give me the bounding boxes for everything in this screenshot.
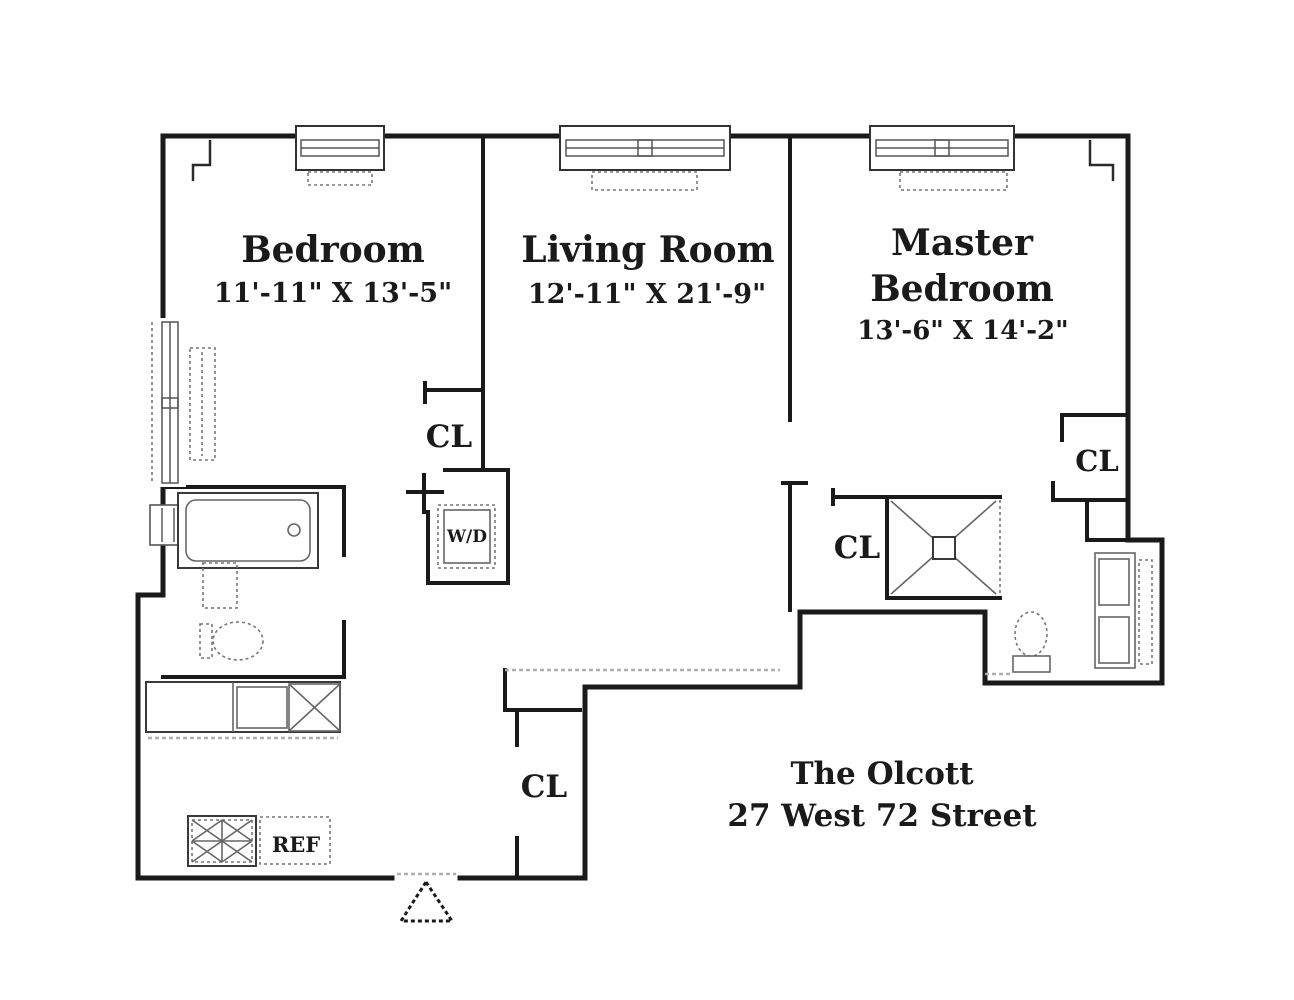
kitchen-fixtures: REF (146, 682, 340, 866)
livingroom-dimensions: 12'-11" X 21'-9" (528, 279, 766, 310)
building-name: The Olcott (790, 756, 974, 792)
building-address: 27 West 72 Street (727, 798, 1037, 834)
wall-livingroom-sw (505, 670, 517, 710)
labels: Bedroom 11'-11" X 13'-5" Living Room 12'… (214, 222, 1119, 834)
master-bath-fixtures (887, 497, 1152, 672)
window-bedroom-top (296, 126, 384, 170)
bathtub (178, 493, 318, 568)
kitchen-stove (188, 816, 256, 866)
wall-step-topright (1090, 140, 1113, 181)
kitchen-refrigerator: REF (260, 817, 330, 864)
foyer-closet-label: CL (521, 769, 568, 805)
master-toilet (1013, 612, 1050, 672)
radiator-livingroom (592, 172, 697, 190)
bedroom-closet-label: CL (426, 419, 473, 455)
shower-drain (933, 537, 955, 559)
floor-plan-image: REF W/D Bed (0, 0, 1294, 1000)
master-bedroom-dimensions: 13'-6" X 14'-2" (857, 316, 1068, 346)
bedroom-label: Bedroom (241, 229, 425, 271)
radiator-bedroom (308, 172, 372, 185)
window-bedroom-west (146, 318, 186, 487)
wall-step-topleft (193, 140, 210, 181)
bathroom-fixtures (178, 493, 318, 660)
wall-vestibule-jamb (1053, 483, 1080, 500)
master-bedroom-label-line2: Bedroom (870, 268, 1054, 310)
radiator-master (900, 172, 1007, 190)
window-livingroom-top (560, 126, 730, 170)
livingroom-label: Living Room (521, 229, 775, 271)
shower (887, 497, 1000, 598)
floor-plan-svg: REF W/D Bed (0, 0, 1294, 1000)
hall-closet-label: CL (834, 530, 881, 566)
refrigerator-label: REF (272, 832, 320, 857)
master-closet-label: CL (1075, 444, 1118, 478)
bathroom-toilet (200, 622, 263, 660)
bedroom-dimensions: 11'-11" X 13'-5" (214, 278, 452, 309)
kitchen-counter (146, 682, 340, 738)
entry-door-triangle (401, 882, 452, 921)
entry-door (401, 882, 452, 921)
washer-dryer-label: W/D (446, 527, 487, 547)
master-vanity (1095, 553, 1152, 668)
master-bedroom-label-line1: Master (891, 222, 1034, 264)
bathroom-sink (203, 563, 237, 608)
window-master-top (870, 126, 1014, 170)
washer-dryer-unit: W/D (438, 505, 495, 568)
radiator-bedroom-west (190, 348, 215, 460)
